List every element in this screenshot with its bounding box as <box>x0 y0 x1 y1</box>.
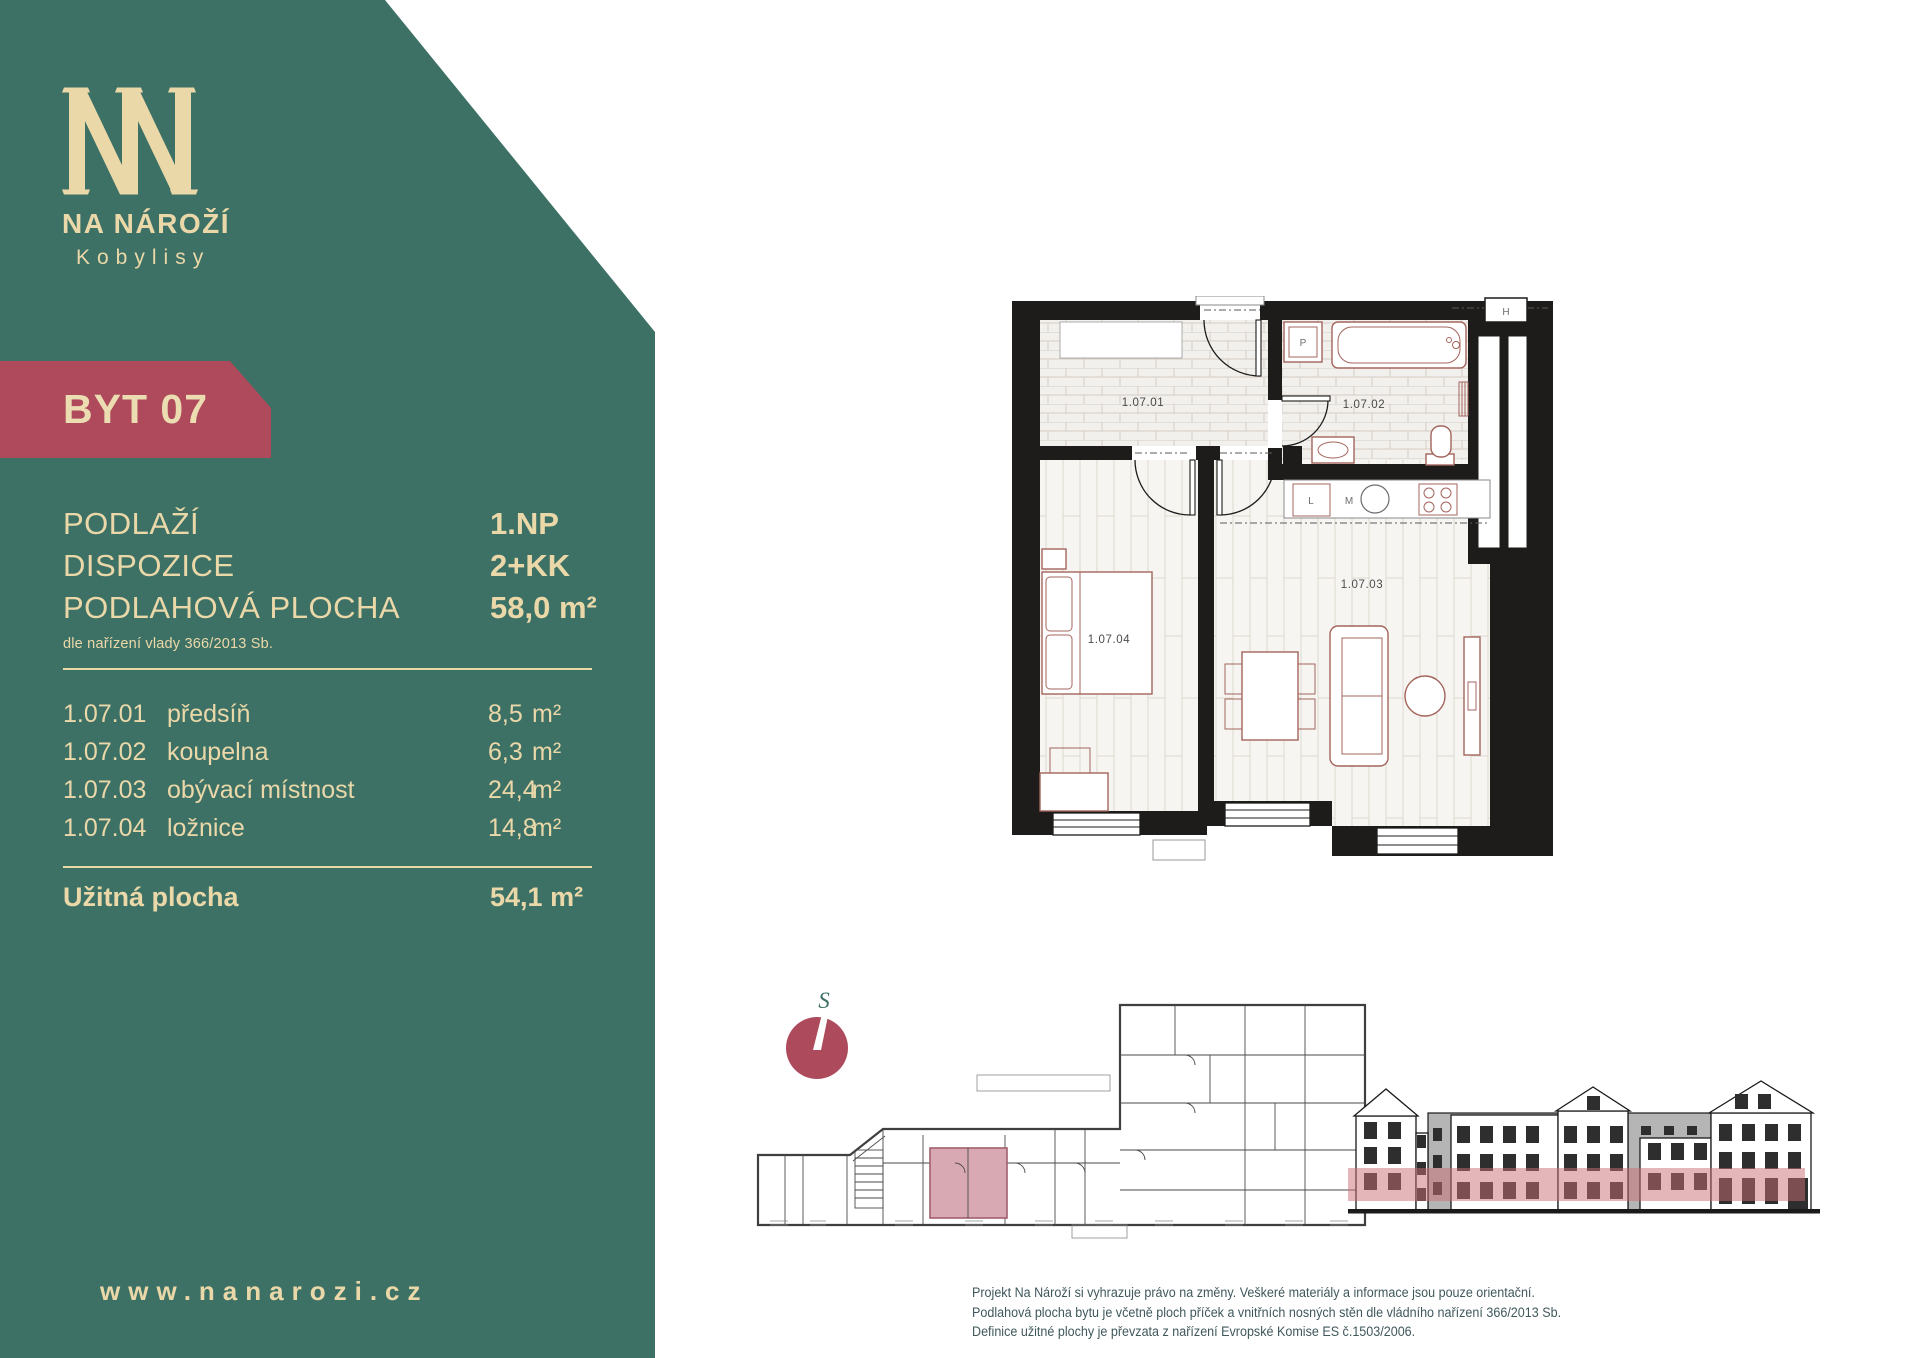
highlighted-floor-band <box>1348 1168 1805 1201</box>
table-row: 1.07.04 ložnice 14,8 m² <box>63 814 603 852</box>
room-name: ložnice <box>167 814 245 843</box>
attr-value: 58,0 m² <box>490 590 597 626</box>
regulation-note: dle nařízení vlady 366/2013 Sb. <box>63 636 273 652</box>
room-code: 1.07.01 <box>63 700 146 729</box>
brand-city: Kobylisy <box>76 246 210 270</box>
table-row: 1.07.02 koupelna 6,3 m² <box>63 738 603 776</box>
room-name: předsíň <box>167 700 250 729</box>
room-unit: m² <box>532 814 561 843</box>
attr-row-floor-area: PODLAHOVÁ PLOCHA 58,0 m² <box>63 590 603 632</box>
usable-area-label: Užitná plocha <box>63 882 239 913</box>
sofa <box>1330 626 1388 766</box>
attr-label: PODLAŽÍ <box>63 506 199 542</box>
room-label-living: 1.07.03 <box>1341 579 1384 591</box>
room-unit: m² <box>532 776 561 805</box>
usable-area-value: 54,1 m² <box>490 882 583 913</box>
kitchen-l-label: L <box>1308 496 1314 507</box>
divider <box>63 668 592 670</box>
sidebar-panel: NA NÁROŽÍ Kobylisy BYT 07 PODLAŽÍ 1.NP D… <box>0 0 655 1358</box>
hall-window <box>1225 803 1310 826</box>
attr-label: PODLAHOVÁ PLOCHA <box>63 590 400 626</box>
room-label-bedroom: 1.07.04 <box>1088 634 1131 646</box>
unit-badge-label: BYT 07 <box>63 386 208 433</box>
room-name: obývací místnost <box>167 776 355 805</box>
disclaimer-line: Definice užitné plochy je převzata z nař… <box>972 1322 1561 1342</box>
building-outline <box>758 1005 1365 1225</box>
room-area: 14,8 <box>488 814 537 843</box>
living-room-window <box>1377 828 1458 854</box>
kitchen-sink <box>1361 485 1389 513</box>
bed <box>1042 572 1152 694</box>
disclaimer-line: Podlahová plocha bytu je včetně ploch př… <box>972 1303 1561 1323</box>
tv-board <box>1464 637 1480 755</box>
table-row: 1.07.01 předsíň 8,5 m² <box>63 700 603 738</box>
bathtub <box>1332 322 1466 368</box>
room-code: 1.07.04 <box>63 814 146 843</box>
building-elevation <box>1348 1078 1840 1258</box>
website-link: www.nanarozi.cz <box>100 1276 429 1307</box>
room-area: 8,5 <box>488 700 523 729</box>
room-table: 1.07.01 předsíň 8,5 m² 1.07.02 koupelna … <box>63 700 603 852</box>
bedroom-window <box>1053 813 1140 835</box>
bathroom-sink <box>1312 437 1354 463</box>
exterior-step <box>1153 840 1205 860</box>
table-row: 1.07.03 obývací místnost 24,4 m² <box>63 776 603 814</box>
attr-row-floor: PODLAŽÍ 1.NP <box>63 506 603 548</box>
unit-badge: BYT 07 <box>0 361 271 458</box>
ground-line <box>1348 1209 1820 1214</box>
room-unit: m² <box>532 738 561 767</box>
disclaimer-line: Projekt Na Nároží si vyhrazuje právo na … <box>972 1283 1561 1303</box>
nightstand <box>1042 549 1066 569</box>
room-code: 1.07.02 <box>63 738 146 767</box>
shaft-label: H <box>1502 307 1509 318</box>
room-unit: m² <box>532 700 561 729</box>
washer-label: P <box>1300 338 1307 349</box>
brand-name: NA NÁROŽÍ <box>62 208 230 240</box>
room-area: 24,4 <box>488 776 537 805</box>
highlighted-unit <box>930 1148 1007 1218</box>
kitchen-m-label: M <box>1345 496 1353 507</box>
wardrobe <box>1060 322 1182 358</box>
apartment-floor-plan: H P <box>1012 296 1553 886</box>
room-name: koupelna <box>167 738 268 767</box>
apartment-attributes: PODLAŽÍ 1.NP DISPOZICE 2+KK PODLAHOVÁ PL… <box>63 506 603 632</box>
building-site-plan <box>755 995 1370 1265</box>
room-area: 6,3 <box>488 738 523 767</box>
room-label-hallway: 1.07.01 <box>1122 397 1165 409</box>
divider <box>63 866 592 868</box>
attr-label: DISPOZICE <box>63 548 235 584</box>
room-label-bathroom: 1.07.02 <box>1343 399 1386 411</box>
coffee-table <box>1405 676 1445 716</box>
attr-value: 1.NP <box>490 506 559 542</box>
attr-row-layout: DISPOZICE 2+KK <box>63 548 603 590</box>
attr-value: 2+KK <box>490 548 570 584</box>
room-code: 1.07.03 <box>63 776 146 805</box>
disclaimer-text: Projekt Na Nároží si vyhrazuje právo na … <box>972 1283 1561 1342</box>
brand-logo-icon <box>60 82 210 200</box>
washing-machine: P <box>1284 322 1322 362</box>
